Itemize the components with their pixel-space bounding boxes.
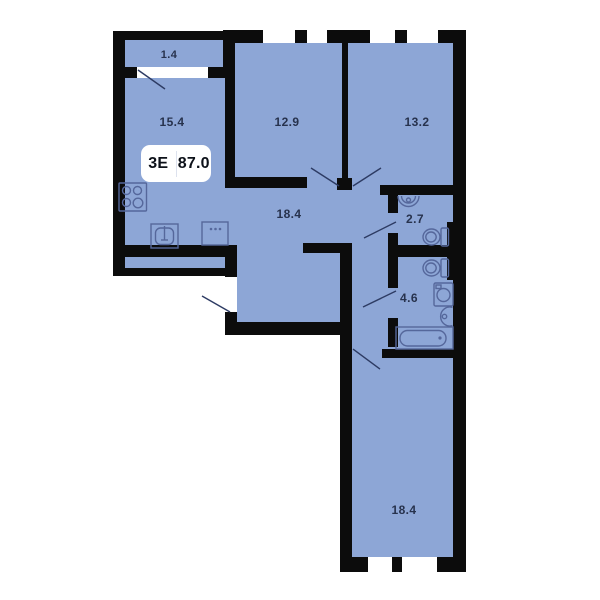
room-area-label-hallway: 18.4 bbox=[277, 207, 302, 221]
room-area-label-kitchen: 15.4 bbox=[160, 115, 185, 129]
room-area-label-bedroom1: 12.9 bbox=[275, 115, 300, 129]
wall-segment bbox=[388, 257, 398, 288]
room-area-label-balcony: 1.4 bbox=[161, 49, 178, 61]
room-area-label-bedroom3: 18.4 bbox=[392, 503, 417, 517]
room-area-label-bedroom2: 13.2 bbox=[405, 115, 430, 129]
wall-segment bbox=[342, 43, 348, 180]
wall-segment bbox=[447, 222, 455, 245]
window-opening bbox=[370, 30, 395, 43]
window-opening bbox=[402, 557, 437, 572]
window-opening bbox=[263, 30, 295, 43]
room-area-label-wc: 2.7 bbox=[406, 212, 424, 226]
window-opening bbox=[137, 67, 208, 78]
wall-segment bbox=[225, 177, 307, 188]
wall-segment bbox=[113, 245, 233, 257]
wall-segment bbox=[225, 322, 342, 335]
floor-plan: 1.4 15.4 12.9 13.2 18.4 2.7 4.6 18.4 3Е … bbox=[0, 0, 600, 600]
room-fill-hallway bbox=[225, 177, 400, 335]
wall-segment bbox=[225, 43, 235, 183]
wall-segment bbox=[388, 245, 455, 257]
wall-segment bbox=[113, 268, 225, 276]
window-opening bbox=[307, 30, 327, 43]
wall-segment bbox=[382, 349, 466, 358]
apartment-type-label: 3Е bbox=[141, 155, 176, 173]
wall-segment bbox=[388, 195, 398, 213]
wall-segment bbox=[340, 335, 352, 572]
wall-segment bbox=[447, 257, 455, 280]
wall-segment bbox=[303, 243, 352, 253]
wall-segment bbox=[388, 318, 398, 347]
wall-segment bbox=[337, 178, 352, 190]
room-area-label-bathroom: 4.6 bbox=[400, 291, 418, 305]
wall-segment bbox=[453, 30, 466, 572]
wall-segment bbox=[340, 253, 352, 335]
window-opening bbox=[407, 30, 438, 43]
apartment-badge: 3Е 87.0 bbox=[141, 145, 211, 182]
window-opening bbox=[368, 557, 392, 572]
wall-segment bbox=[380, 185, 466, 195]
apartment-total-area: 87.0 bbox=[177, 155, 212, 173]
entrance-opening bbox=[225, 277, 237, 312]
wall-segment bbox=[113, 31, 225, 40]
room-fill-bedroom-bottom bbox=[340, 333, 466, 572]
